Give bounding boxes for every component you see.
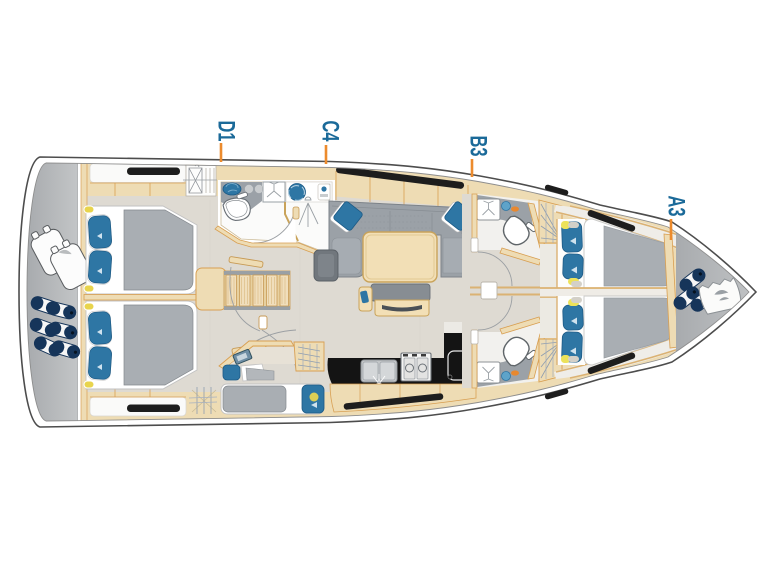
svg-text:A3: A3 [663, 196, 690, 217]
svg-text:D1: D1 [213, 121, 240, 142]
svg-text:B3: B3 [465, 136, 492, 157]
svg-text:C4: C4 [317, 121, 344, 142]
